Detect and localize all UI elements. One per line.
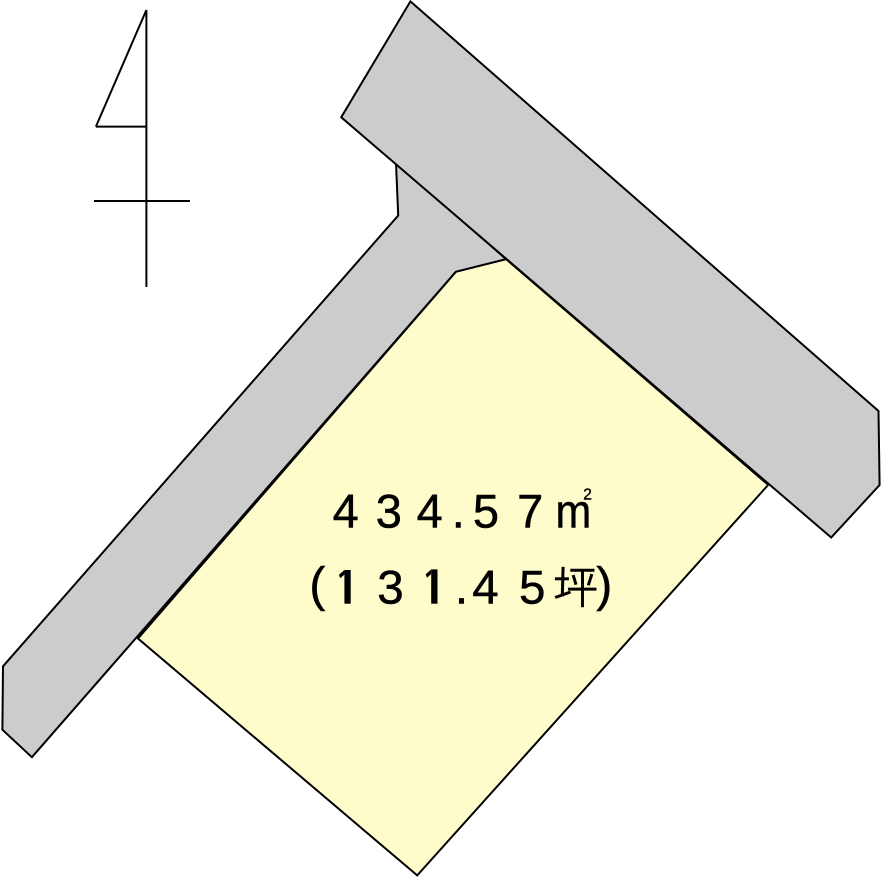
svg-text:3: 3 — [376, 485, 402, 538]
svg-text:(: ( — [309, 559, 325, 612]
svg-text:4: 4 — [472, 562, 498, 615]
svg-text:): ) — [596, 559, 612, 612]
svg-text:4: 4 — [417, 485, 443, 538]
svg-text:2: 2 — [583, 486, 592, 503]
svg-text:5: 5 — [519, 562, 545, 615]
svg-text:5: 5 — [473, 485, 499, 538]
svg-text:3: 3 — [377, 562, 403, 615]
svg-text:.: . — [452, 485, 465, 538]
svg-text:4: 4 — [333, 485, 359, 538]
svg-text:.: . — [455, 562, 468, 615]
svg-text:7: 7 — [517, 485, 543, 538]
